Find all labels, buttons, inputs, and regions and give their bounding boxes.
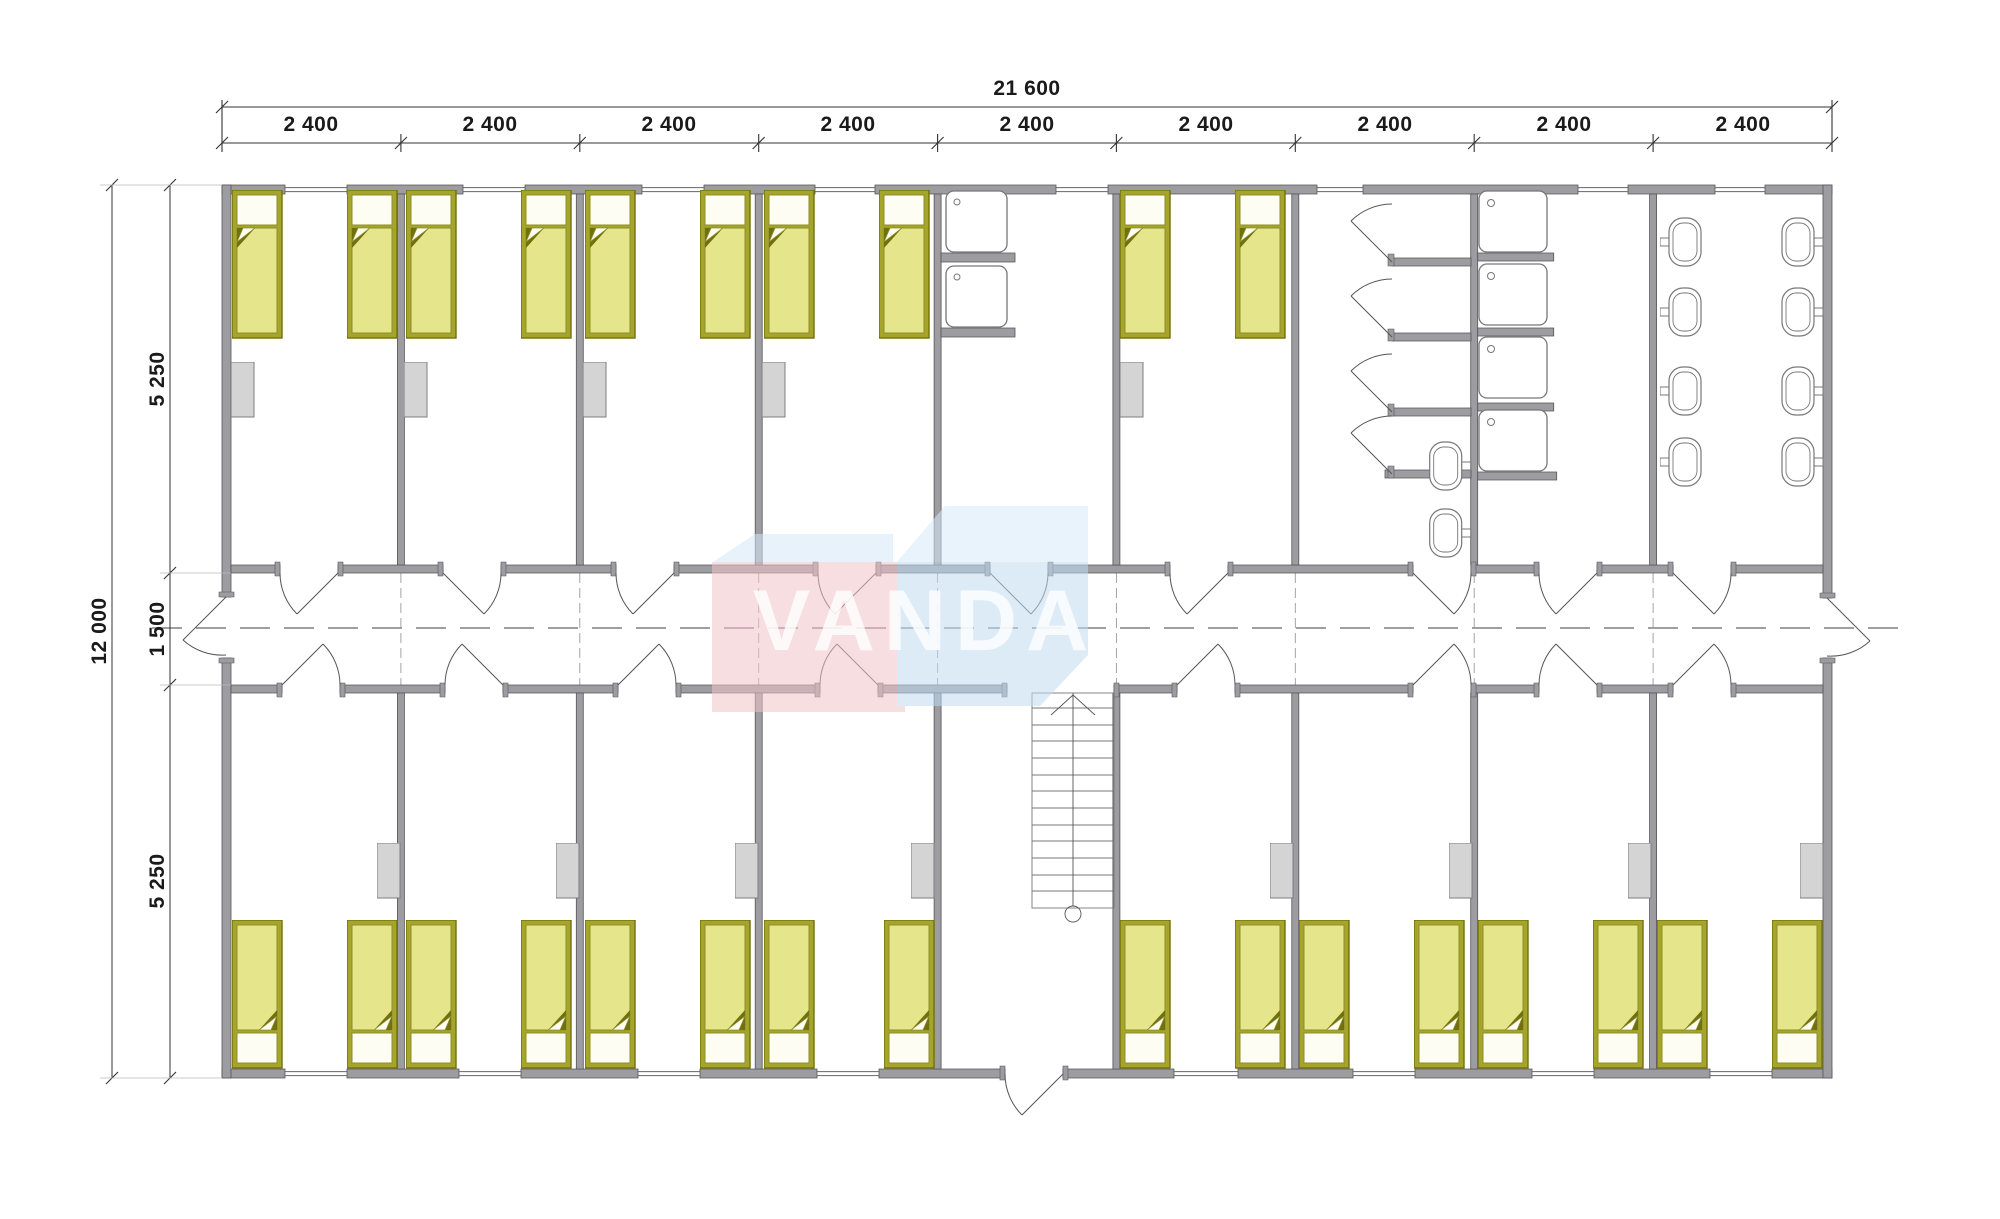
wardrobes xyxy=(231,362,1823,898)
dim-overall-width: 21 600 xyxy=(993,77,1060,101)
shower-tray xyxy=(1479,191,1547,252)
bed xyxy=(347,920,397,1068)
bed xyxy=(1235,190,1285,338)
dim-module-1: 2 400 xyxy=(283,113,338,137)
toilet xyxy=(1430,509,1471,557)
bed xyxy=(406,920,456,1068)
bed xyxy=(1120,920,1170,1068)
toilet xyxy=(1782,438,1823,486)
dim-module-4: 2 400 xyxy=(820,113,875,137)
dim-module-7: 2 400 xyxy=(1357,113,1412,137)
wardrobe xyxy=(1120,362,1143,417)
toilet xyxy=(1660,288,1701,336)
module-axis-lines xyxy=(401,558,1653,700)
bed xyxy=(1414,920,1464,1068)
bed xyxy=(1235,920,1285,1068)
bed xyxy=(1478,920,1528,1068)
exterior-walls xyxy=(222,185,1832,1078)
staircase xyxy=(1032,693,1114,922)
shower-tray xyxy=(1479,264,1547,325)
bed xyxy=(1593,920,1643,1068)
bed xyxy=(232,920,282,1068)
bed xyxy=(764,920,814,1068)
bed xyxy=(1657,920,1707,1068)
bed xyxy=(764,190,814,338)
wardrobe xyxy=(1449,843,1472,898)
bed xyxy=(700,920,750,1068)
dim-module-6: 2 400 xyxy=(1178,113,1233,137)
bed xyxy=(1299,920,1349,1068)
floor-plan-page: VANDA 21 600 2 400 2 400 2 400 2 400 2 4… xyxy=(0,0,2000,1219)
dim-module-8: 2 400 xyxy=(1536,113,1591,137)
toilet xyxy=(1660,367,1701,415)
dim-overall-height: 12 000 xyxy=(88,597,112,664)
dim-left-segment-2: 1 500 xyxy=(146,601,170,656)
wardrobe xyxy=(404,362,427,417)
wardrobe xyxy=(231,362,254,417)
wardrobe xyxy=(556,843,579,898)
shower-tray xyxy=(1479,337,1547,398)
wardrobe xyxy=(1628,843,1651,898)
bed xyxy=(521,190,571,338)
dim-module-5: 2 400 xyxy=(999,113,1054,137)
dim-module-9: 2 400 xyxy=(1715,113,1770,137)
dim-left-segment-3: 5 250 xyxy=(146,853,170,908)
wardrobe xyxy=(762,362,785,417)
corridor-walls xyxy=(231,565,1823,693)
dim-left-segment-1: 5 250 xyxy=(146,351,170,406)
beds-bottom-band xyxy=(232,920,1822,1068)
bed xyxy=(1772,920,1822,1068)
wardrobe xyxy=(911,843,934,898)
toilet xyxy=(1430,442,1471,490)
bed xyxy=(585,190,635,338)
toilet xyxy=(1782,367,1823,415)
wardrobe xyxy=(1800,843,1823,898)
toilet xyxy=(1782,288,1823,336)
dim-module-3: 2 400 xyxy=(641,113,696,137)
basin xyxy=(946,266,1007,327)
door-posts xyxy=(219,254,1835,1080)
shower-tray xyxy=(1479,410,1547,471)
dim-module-2: 2 400 xyxy=(462,113,517,137)
bed xyxy=(232,190,282,338)
basin xyxy=(946,191,1007,252)
bed xyxy=(879,190,929,338)
bed xyxy=(1120,190,1170,338)
wardrobe xyxy=(735,843,758,898)
bed xyxy=(406,190,456,338)
bed xyxy=(700,190,750,338)
bed xyxy=(585,920,635,1068)
wardrobe xyxy=(583,362,606,417)
floor-plan-drawing xyxy=(0,0,2000,1219)
wardrobe xyxy=(1270,843,1293,898)
bed xyxy=(347,190,397,338)
toilet xyxy=(1660,438,1701,486)
wardrobe xyxy=(377,843,400,898)
toilet xyxy=(1660,218,1701,266)
windows xyxy=(285,188,1772,1076)
bed xyxy=(521,920,571,1068)
bed xyxy=(884,920,934,1068)
sanitary-fixtures xyxy=(946,191,1823,557)
toilet xyxy=(1782,218,1823,266)
